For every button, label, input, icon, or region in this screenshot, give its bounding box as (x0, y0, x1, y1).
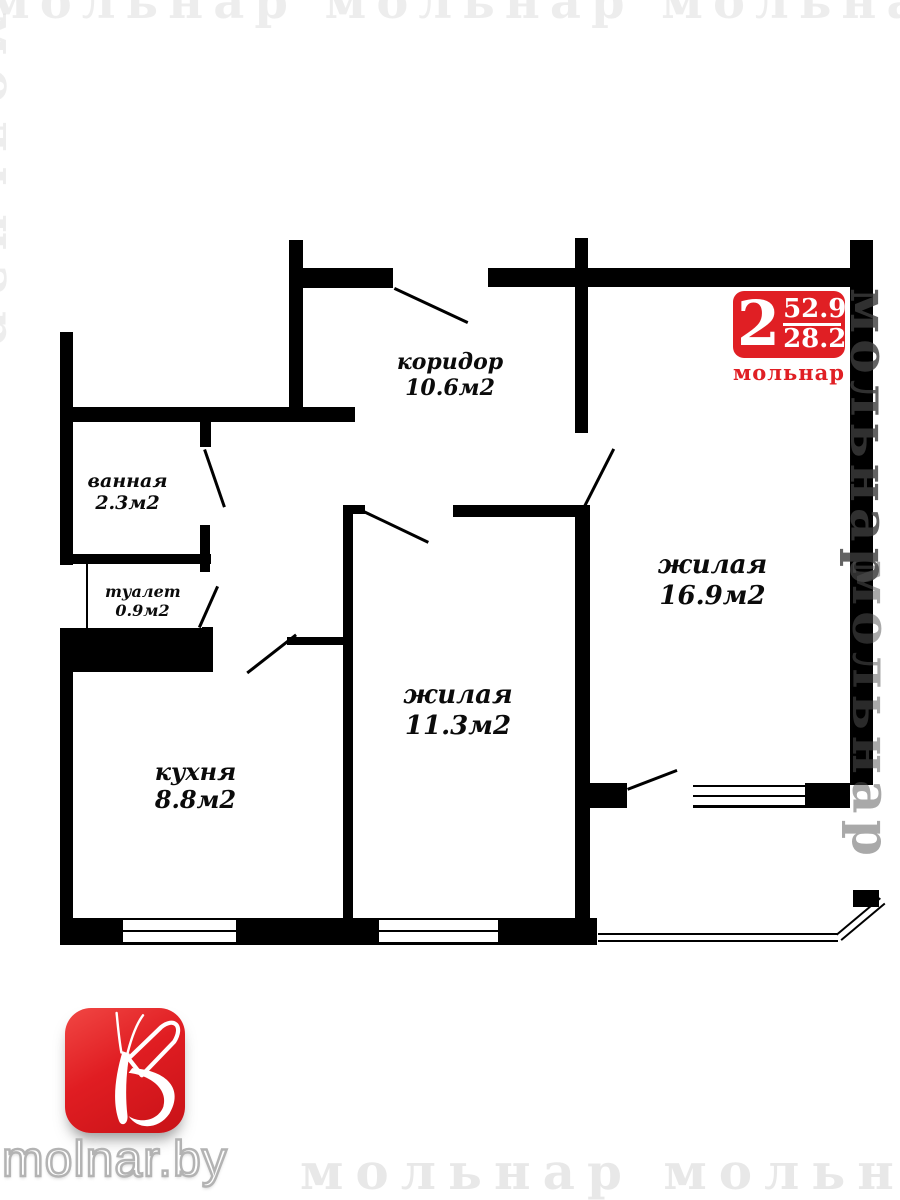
wall-shaft-band (60, 628, 213, 672)
balcony-bottom-line (598, 933, 838, 942)
badge-areas-fraction: 52.9 28.2 (783, 296, 841, 353)
room-name: кухня (148, 758, 243, 786)
room-label-kitchen: кухня 8.8м2 (148, 758, 243, 815)
room-label-toilet: туалет 0.9м2 (105, 583, 180, 621)
wall-living2-bottom-stub (588, 783, 627, 808)
wall-bathroom-door-jamb (200, 422, 211, 447)
wall-living2-bottom-right (805, 783, 850, 808)
wall-bottom-kitchen-left (60, 918, 123, 945)
door-living1 (363, 510, 429, 544)
floor-plan: мольнар мольнар мольнар мольнар мольнар … (0, 0, 900, 1200)
door-entry (394, 287, 469, 324)
door-kitchen (246, 634, 297, 675)
wall-left-upper (60, 332, 73, 565)
room-area: 2.3м2 (85, 492, 170, 514)
room-name: жилая (398, 680, 518, 711)
wall-bottom-right (498, 918, 597, 945)
wall-vent-channel-line (86, 564, 88, 628)
room-label-corridor: коридор 10.6м2 (390, 350, 510, 402)
wall-mid-vertical (575, 505, 590, 945)
wall-entry-left-stub (289, 240, 303, 422)
wall-top-main (488, 268, 873, 287)
badge-rooms-count: 2 (737, 294, 780, 354)
watermark-left: мольнар (0, 12, 27, 360)
watermark-top: мольнар мольнар мольнар (0, 0, 900, 30)
badge-brand-label: мольнар (733, 360, 845, 385)
room-name: коридор (390, 350, 510, 376)
molnar-logo (65, 1008, 185, 1133)
room-area: 11.3м2 (398, 711, 518, 742)
door-toilet (198, 586, 219, 628)
badge-total-area: 52.9 (783, 296, 841, 326)
wall-bottom-middle (236, 918, 379, 945)
room-area: 8.8м2 (148, 786, 243, 814)
badge-living-area: 28.2 (783, 326, 841, 353)
door-living2 (582, 448, 615, 509)
door-bathroom (203, 449, 226, 508)
watermark-bottom: мольнар мольнар (300, 1142, 900, 1200)
door-balcony (627, 769, 678, 791)
room-area: 10.6м2 (390, 376, 510, 402)
apartment-badge: 2 52.9 28.2 (733, 291, 845, 358)
wall-right-column (850, 240, 873, 785)
wall-corridor-vertical (575, 238, 588, 433)
room-label-bathroom: ванная 2.3м2 (85, 470, 170, 515)
wall-entry-piece (303, 268, 393, 288)
window-living1 (379, 918, 498, 945)
wall-bath-toilet-divider (72, 554, 211, 564)
wall-left-lower (60, 628, 73, 945)
wall-toilet-right-stub (200, 525, 210, 572)
room-name: жилая (650, 550, 775, 581)
room-name: ванная (85, 470, 170, 492)
room-area: 16.9м2 (650, 581, 775, 612)
butterfly-icon (65, 1008, 185, 1133)
wall-bathroom-top (60, 407, 355, 422)
room-label-living1: жилая 11.3м2 (398, 680, 518, 741)
window-living2 (693, 785, 805, 808)
room-label-living2: жилая 16.9м2 (650, 550, 775, 611)
wall-living1-top (453, 505, 583, 517)
window-kitchen (123, 918, 236, 945)
room-name: туалет (105, 583, 180, 602)
site-name: molnar.by (2, 1130, 228, 1188)
wall-living1-left (343, 505, 353, 918)
room-area: 0.9м2 (105, 602, 180, 621)
